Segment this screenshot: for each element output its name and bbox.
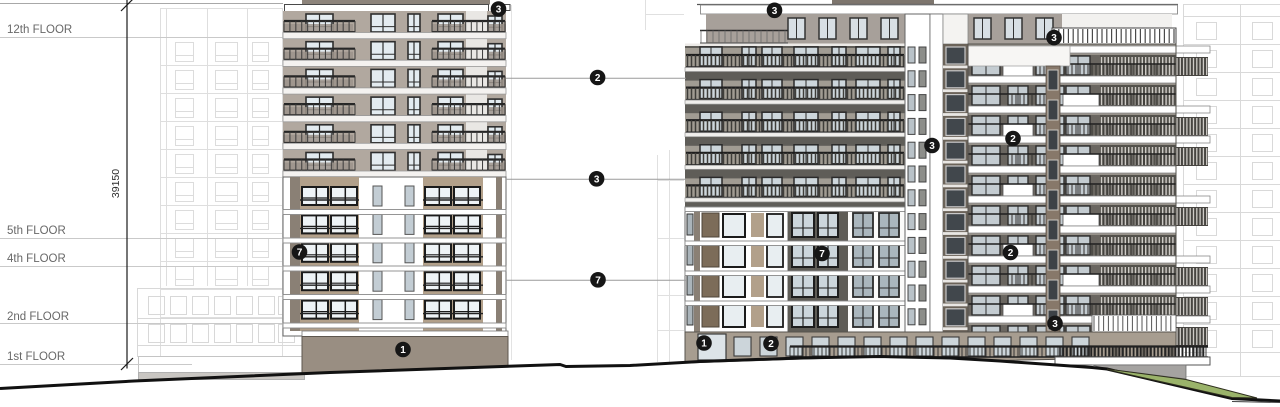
- svg-text:7: 7: [595, 275, 601, 286]
- svg-text:3: 3: [496, 5, 502, 16]
- svg-text:2: 2: [1008, 248, 1014, 259]
- svg-text:3: 3: [772, 6, 778, 17]
- svg-text:12th FLOOR: 12th FLOOR: [7, 24, 72, 36]
- svg-text:4th FLOOR: 4th FLOOR: [7, 253, 66, 265]
- svg-text:1: 1: [400, 345, 406, 356]
- svg-text:3: 3: [1052, 319, 1058, 330]
- svg-text:3: 3: [929, 141, 935, 152]
- svg-text:1st FLOOR: 1st FLOOR: [7, 351, 65, 363]
- svg-text:3: 3: [594, 174, 600, 185]
- svg-text:2nd FLOOR: 2nd FLOOR: [7, 311, 69, 323]
- svg-text:39150: 39150: [110, 169, 122, 198]
- svg-text:2: 2: [768, 339, 774, 350]
- svg-text:3: 3: [1051, 33, 1057, 44]
- svg-text:2: 2: [595, 73, 601, 84]
- svg-text:5th FLOOR: 5th FLOOR: [7, 225, 66, 237]
- svg-text:2: 2: [1010, 134, 1016, 145]
- svg-text:7: 7: [297, 248, 303, 259]
- svg-text:7: 7: [819, 249, 825, 260]
- svg-text:1: 1: [701, 339, 707, 350]
